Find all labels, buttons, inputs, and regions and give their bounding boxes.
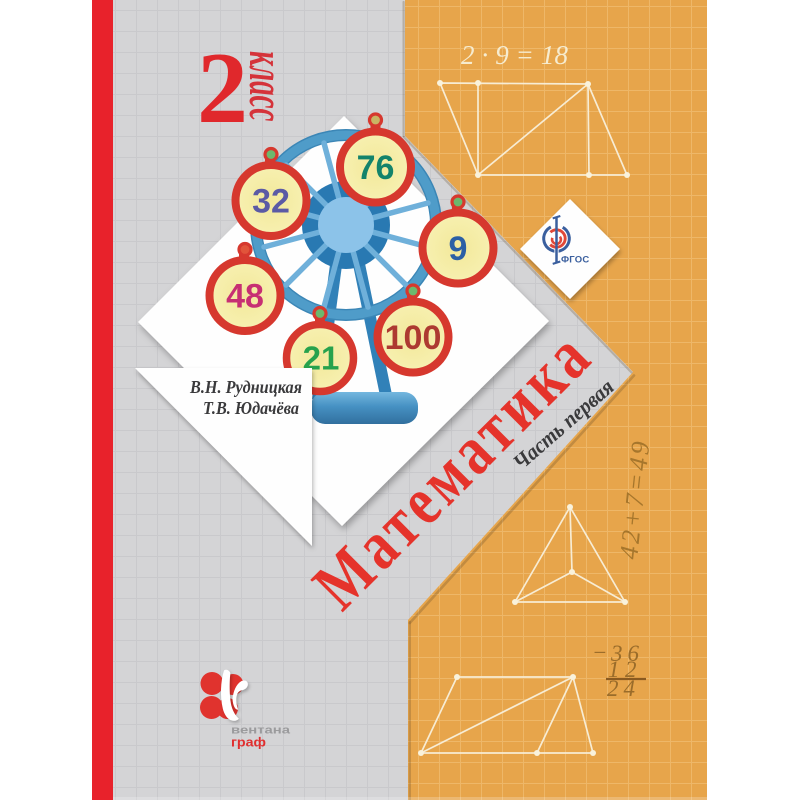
svg-text:класс: класс — [239, 51, 294, 121]
svg-text:В.Н. Рудницкая: В.Н. Рудницкая — [189, 377, 302, 397]
svg-text:32: 32 — [252, 183, 290, 221]
svg-text:граф: граф — [231, 736, 266, 750]
svg-text:ФГОС: ФГОС — [561, 255, 589, 266]
svg-text:Т.В. Юдачёва: Т.В. Юдачёва — [203, 398, 299, 418]
svg-text:76: 76 — [357, 149, 395, 187]
svg-text:100: 100 — [385, 319, 442, 357]
svg-text:2 · 9 = 18: 2 · 9 = 18 — [461, 40, 569, 70]
svg-text:−: − — [592, 640, 608, 665]
svg-text:48: 48 — [226, 278, 264, 316]
svg-text:9: 9 — [449, 230, 468, 268]
